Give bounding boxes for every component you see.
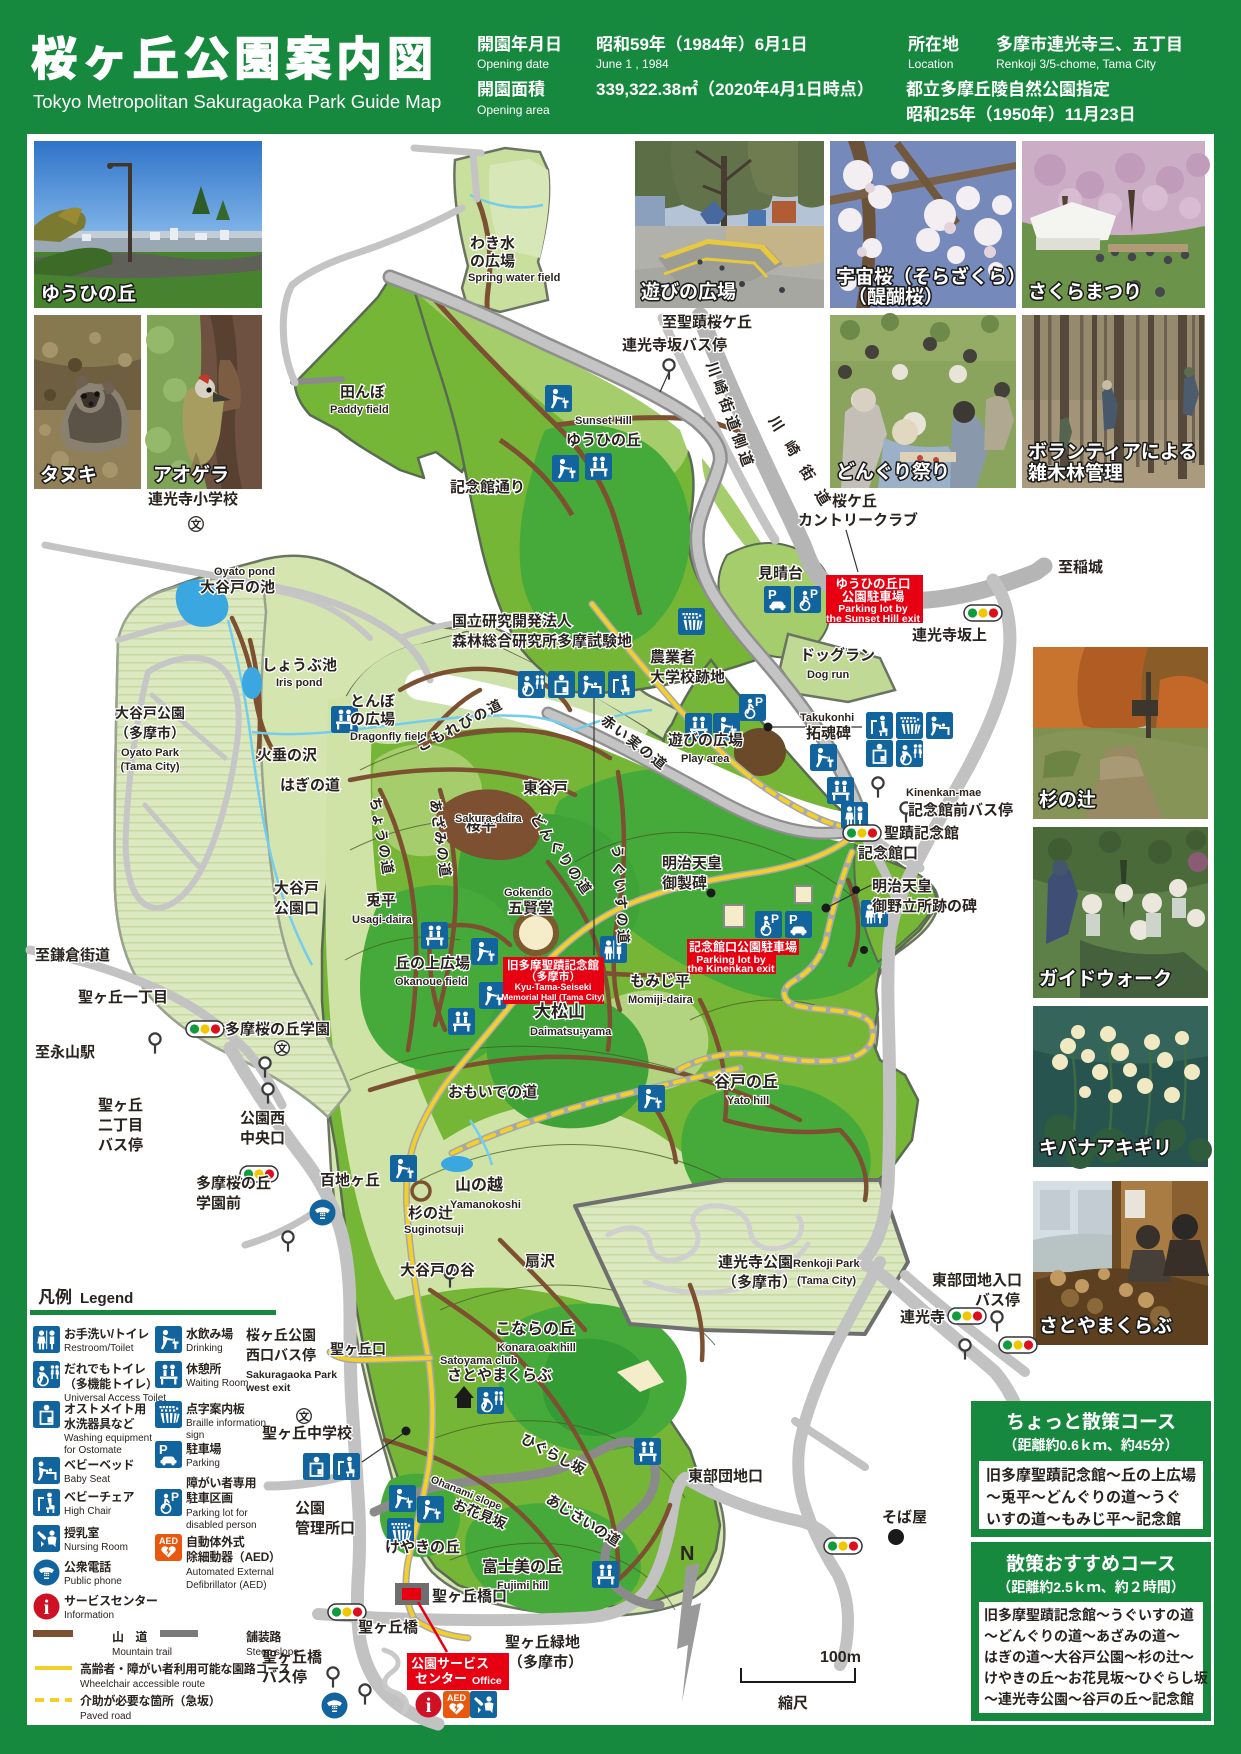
svg-text:ちょっと散策コース: ちょっと散策コース [1006,1407,1176,1434]
svg-text:Opening area: Opening area [477,103,550,117]
svg-text:杉の辻: 杉の辻 [408,1202,453,1223]
svg-text:(Tama City): (Tama City) [120,761,179,773]
svg-text:けやきの丘～お花見坂～ひぐらし坂: けやきの丘～お花見坂～ひぐらし坂 [984,1668,1208,1688]
svg-text:Tokyo Metropolitan Sakuragaoka: Tokyo Metropolitan Sakuragaoka Park Guid… [33,91,441,112]
svg-text:Braille information: Braille information [186,1418,266,1429]
svg-text:聖ヶ丘: 聖ヶ丘 [98,1094,143,1115]
svg-text:100m: 100m [820,1643,861,1667]
svg-text:Yato hill: Yato hill [727,1095,769,1107]
svg-text:田んぼ: 田んぼ [340,381,385,402]
svg-text:Konara oak hill: Konara oak hill [497,1342,576,1354]
svg-text:連光寺小学校: 連光寺小学校 [148,488,238,509]
svg-text:しょうぶ池: しょうぶ池 [262,654,337,675]
svg-text:disabled person: disabled person [186,1520,257,1531]
svg-text:Location: Location [908,57,953,71]
svg-text:授乳室: 授乳室 [64,1524,99,1541]
svg-text:大学校跡地: 大学校跡地 [650,666,725,687]
svg-text:Usagi-daira: Usagi-daira [352,914,413,926]
svg-text:（距離約0.6ｋｍ、約45分）: （距離約0.6ｋｍ、約45分） [1003,1435,1178,1455]
svg-text:～兎平～どんぐりの道～うぐ: ～兎平～どんぐりの道～うぐ [986,1486,1181,1507]
svg-text:Legend: Legend [80,1290,133,1307]
svg-text:多摩市連光寺三、五丁目: 多摩市連光寺三、五丁目 [996,30,1183,55]
svg-text:お手洗い/トイレ: お手洗い/トイレ [64,1325,149,1342]
svg-text:Nursing Room: Nursing Room [64,1542,128,1553]
svg-text:雑木林管理: 雑木林管理 [1028,458,1123,485]
svg-text:休憩所: 休憩所 [186,1360,221,1377]
svg-text:旧多摩聖蹟記念館～うぐいすの道: 旧多摩聖蹟記念館～うぐいすの道 [984,1605,1194,1625]
svg-text:Wheelchair accessible route: Wheelchair accessible route [80,1679,205,1690]
svg-text:旧多摩聖蹟記念館～丘の上広場: 旧多摩聖蹟記念館～丘の上広場 [986,1464,1196,1485]
svg-text:（多摩市）: （多摩市） [508,1651,583,1672]
svg-text:Parking lot for: Parking lot for [186,1508,248,1519]
svg-text:Oyato pond: Oyato pond [214,566,275,578]
svg-text:ゆうひの丘: ゆうひの丘 [566,429,641,450]
svg-text:水飲み場: 水飲み場 [186,1325,233,1342]
svg-text:（多機能トイレ）: （多機能トイレ） [64,1375,158,1392]
svg-text:舗装路: 舗装路 [246,1628,281,1645]
svg-text:記念館通り: 記念館通り [450,476,525,497]
svg-text:もみじ平: もみじ平 [630,970,690,991]
svg-text:御野立所跡の碑: 御野立所跡の碑 [872,895,977,916]
svg-text:至聖蹟桜ケ丘: 至聖蹟桜ケ丘 [662,311,752,332]
svg-text:さとやまくらぶ: さとやまくらぶ [1039,1311,1172,1338]
svg-text:Yamanokoshi: Yamanokoshi [450,1199,521,1211]
svg-text:管理所口: 管理所口 [295,1517,355,1538]
svg-text:（醍醐桜）: （醍醐桜） [848,282,943,309]
svg-text:介助が必要な箇所（急坂）: 介助が必要な箇所（急坂） [80,1692,220,1709]
svg-text:Office: Office [472,1675,502,1687]
svg-text:大谷戸の谷: 大谷戸の谷 [400,1259,475,1280]
svg-text:高齢者・障がい者利用可能な園路コース: 高齢者・障がい者利用可能な園路コース [80,1660,290,1677]
svg-text:Satoyama club: Satoyama club [440,1355,518,1367]
svg-text:都立多摩丘陵自然公園指定: 都立多摩丘陵自然公園指定 [906,75,1110,100]
svg-text:Renkoji Park: Renkoji Park [793,1258,861,1270]
svg-text:こならの丘: こならの丘 [495,1315,575,1339]
svg-text:縮尺: 縮尺 [778,1692,808,1713]
svg-text:キバナアキギリ: キバナアキギリ [1039,1133,1172,1160]
svg-text:開園面積: 開園面積 [477,75,545,100]
svg-text:西口バス停: 西口バス停 [246,1345,316,1365]
svg-text:桜ヶ丘公園: 桜ヶ丘公園 [246,1325,316,1345]
svg-text:（多摩市）: （多摩市） [115,723,185,743]
svg-text:水洗器具など: 水洗器具など [64,1415,135,1432]
svg-text:聖ヶ丘一丁目: 聖ヶ丘一丁目 [78,986,168,1007]
svg-text:はぎの道: はぎの道 [280,774,340,795]
svg-text:所在地: 所在地 [908,30,959,55]
svg-text:大谷戸: 大谷戸 [274,877,319,898]
svg-text:（距離約2.5ｋｍ、約２時間）: （距離約2.5ｋｍ、約２時間） [997,1577,1184,1597]
svg-text:Iris pond: Iris pond [276,677,322,689]
svg-text:Fujimi hill: Fujimi hill [497,1580,548,1592]
svg-text:公園: 公園 [295,1497,325,1518]
svg-text:至稲城: 至稲城 [1058,556,1103,577]
svg-text:記念館前バス停: 記念館前バス停 [908,799,1013,820]
svg-text:June 1 , 1984: June 1 , 1984 [596,57,669,71]
svg-text:富士美の丘: 富士美の丘 [482,1553,562,1577]
svg-text:明治天皇: 明治天皇 [872,875,932,896]
svg-text:(Tama City): (Tama City) [797,1275,856,1287]
svg-text:山の越: 山の越 [455,1171,503,1195]
svg-text:Okanoue field: Okanoue field [395,976,468,988]
svg-text:遊びの広場: 遊びの広場 [641,277,736,304]
svg-text:Kyu-Tama-Seiseki: Kyu-Tama-Seiseki [515,982,592,992]
svg-text:ベビーベッド: ベビーベッド [64,1456,134,1473]
svg-text:Daimatsu-yama: Daimatsu-yama [530,1026,612,1038]
svg-text:公衆電話: 公衆電話 [64,1558,111,1575]
svg-text:おもいでの道: おもいでの道 [448,1081,537,1102]
svg-text:Kinenkan-mae: Kinenkan-mae [906,787,981,799]
svg-text:大松山: 大松山 [534,997,585,1022]
svg-text:the Sunset Hill exit: the Sunset Hill exit [826,613,920,625]
svg-text:山 道: 山 道 [112,1628,147,1645]
svg-text:農業者: 農業者 [650,646,695,667]
svg-text:Oyato Park: Oyato Park [121,747,180,759]
svg-text:Parking: Parking [186,1458,220,1469]
svg-text:丘の上広場: 丘の上広場 [395,952,470,973]
svg-text:記念館口公園駐車場: 記念館口公園駐車場 [689,938,797,955]
svg-text:連光寺坂バス停: 連光寺坂バス停 [622,334,727,355]
svg-text:（多摩市）: （多摩市） [722,1271,797,1292]
svg-text:Automated External: Automated External [186,1567,274,1578]
svg-text:聖ヶ丘口: 聖ヶ丘口 [330,1339,386,1359]
svg-text:Momiji-daira: Momiji-daira [628,994,694,1006]
svg-text:センター: センター [415,1668,467,1687]
svg-text:Paved road: Paved road [80,1711,131,1722]
svg-text:聖蹟記念館: 聖蹟記念館 [884,822,959,843]
svg-text:N: N [680,1543,694,1565]
svg-text:五賢堂: 五賢堂 [508,897,553,918]
svg-text:東部団地口: 東部団地口 [688,1465,763,1486]
svg-text:連光寺坂上: 連光寺坂上 [912,624,987,645]
svg-text:Washing equipment: Washing equipment [64,1433,152,1444]
svg-text:火垂の沢: 火垂の沢 [257,744,317,765]
svg-text:聖ヶ丘橋: 聖ヶ丘橋 [358,1616,418,1637]
svg-text:ガイドウォーク: ガイドウォーク [1039,964,1172,991]
svg-text:いすの道～もみじ平～記念館: いすの道～もみじ平～記念館 [986,1508,1181,1529]
svg-text:Paddy field: Paddy field [330,404,389,416]
svg-text:Waiting Room: Waiting Room [186,1378,248,1389]
svg-text:タヌキ: タヌキ [40,460,97,487]
svg-text:中央口: 中央口 [240,1127,285,1148]
svg-text:Drinking: Drinking [186,1343,223,1354]
svg-text:Restroom/Toilet: Restroom/Toilet [64,1343,134,1354]
svg-text:至永山駅: 至永山駅 [35,1041,95,1062]
svg-text:散策おすすめコース: 散策おすすめコース [1006,1549,1176,1576]
svg-text:the Kinenkan exit: the Kinenkan exit [688,963,775,975]
svg-text:遊びの広場: 遊びの広場 [668,729,743,750]
svg-text:Public phone: Public phone [64,1576,122,1587]
svg-text:大谷戸の池: 大谷戸の池 [200,576,275,597]
svg-text:ドッグラン: ドッグラン [800,644,875,665]
svg-text:Renkoji 3/5-chome, Tama City: Renkoji 3/5-chome, Tama City [996,57,1156,71]
svg-text:昭和59年（1984年）6月1日: 昭和59年（1984年）6月1日 [596,30,808,55]
svg-text:記念館口: 記念館口 [858,842,918,863]
svg-text:カントリークラブ: カントリークラブ [798,509,918,530]
svg-text:Opening date: Opening date [477,57,549,71]
svg-text:駐車場: 駐車場 [186,1440,221,1457]
svg-text:Takukonhi: Takukonhi [800,712,854,724]
svg-text:兎平: 兎平 [366,889,396,910]
svg-text:東谷戸: 東谷戸 [523,777,568,798]
svg-text:けやきの丘: けやきの丘 [385,1536,460,1557]
svg-text:多摩桜の丘: 多摩桜の丘 [196,1172,271,1193]
svg-text:公園西: 公園西 [240,1107,285,1128]
svg-text:の広場: の広場 [350,708,395,729]
svg-text:Baby Seat: Baby Seat [64,1474,110,1485]
svg-text:for Ostomate: for Ostomate [64,1445,122,1456]
svg-text:Play area: Play area [681,753,730,765]
svg-text:Defibrillator (AED): Defibrillator (AED) [186,1580,267,1591]
svg-text:公園口: 公園口 [274,897,319,918]
svg-text:連光寺公園: 連光寺公園 [718,1251,793,1272]
svg-text:Information: Information [64,1610,114,1621]
svg-text:Dog run: Dog run [807,669,849,681]
svg-text:聖ヶ丘中学校: 聖ヶ丘中学校 [262,1422,352,1443]
svg-text:凡例: 凡例 [38,1283,72,1308]
svg-text:杉の辻: 杉の辻 [1039,785,1096,812]
svg-text:拓魂碑: 拓魂碑 [806,722,851,743]
svg-text:点字案内板: 点字案内板 [186,1400,245,1417]
svg-text:さとやまくらぶ: さとやまくらぶ [447,1364,552,1385]
svg-text:さくらまつり: さくらまつり [1028,277,1142,304]
svg-text:聖ヶ丘橋口: 聖ヶ丘橋口 [432,1585,507,1606]
svg-text:Gokendo: Gokendo [504,887,552,899]
svg-text:Sunset Hill: Sunset Hill [575,415,632,427]
svg-text:谷戸の丘: 谷戸の丘 [714,1068,778,1092]
svg-text:はぎの道～大谷戸公園～杉の辻～: はぎの道～大谷戸公園～杉の辻～ [984,1647,1194,1667]
svg-text:バス停: バス停 [98,1134,143,1155]
svg-text:見晴台: 見晴台 [758,562,803,583]
svg-text:御製碑: 御製碑 [662,872,707,893]
svg-text:Sakuragaoka Park: Sakuragaoka Park [246,1369,337,1381]
svg-text:東部団地入口: 東部団地入口 [932,1269,1022,1290]
svg-text:明治天皇: 明治天皇 [662,852,722,873]
svg-text:多摩桜の丘学園: 多摩桜の丘学園 [225,1018,330,1039]
svg-text:Universal Access Toilet: Universal Access Toilet [64,1393,166,1404]
svg-text:west exit: west exit [245,1382,291,1394]
svg-text:Spring water field: Spring water field [468,272,560,284]
svg-text:ゆうひの丘: ゆうひの丘 [41,279,136,306]
svg-text:連光寺: 連光寺 [900,1306,945,1327]
svg-text:～どんぐりの道～あざみの道～: ～どんぐりの道～あざみの道～ [984,1626,1180,1646]
svg-text:そば屋: そば屋 [882,1506,927,1527]
svg-text:開園年月日: 開園年月日 [477,30,562,55]
svg-text:除細動器（AED）: 除細動器（AED） [186,1548,281,1565]
svg-text:大谷戸公園: 大谷戸公園 [115,703,185,723]
svg-text:High Chair: High Chair [64,1506,112,1517]
svg-text:Suginotsuji: Suginotsuji [404,1224,464,1236]
svg-text:二丁目: 二丁目 [98,1114,143,1135]
svg-text:サービスセンター: サービスセンター [64,1592,158,1609]
svg-text:Steep slope: Steep slope [246,1647,299,1658]
svg-text:森林総合研究所多摩試験地: 森林総合研究所多摩試験地 [452,630,632,651]
svg-text:Mountain trail: Mountain trail [112,1647,172,1658]
svg-text:アオゲラ: アオゲラ [153,460,229,487]
svg-text:聖ヶ丘緑地: 聖ヶ丘緑地 [505,1631,580,1652]
svg-text:ベビーチェア: ベビーチェア [64,1488,135,1505]
svg-text:339,322.38㎡（2020年4月1日時点）: 339,322.38㎡（2020年4月1日時点） [596,75,874,100]
svg-text:昭和25年（1950年）11月23日: 昭和25年（1950年）11月23日 [906,100,1136,125]
svg-text:の広場: の広場 [470,250,515,271]
svg-text:どんぐり祭り: どんぐり祭り [836,457,950,484]
svg-text:百地ヶ丘: 百地ヶ丘 [320,1169,380,1190]
svg-text:～連光寺公園～谷戸の丘～記念館: ～連光寺公園～谷戸の丘～記念館 [984,1689,1194,1709]
svg-text:学園前: 学園前 [196,1192,241,1213]
svg-text:sign: sign [186,1430,204,1441]
svg-text:至鎌倉街道: 至鎌倉街道 [35,944,110,965]
svg-text:バス停: バス停 [975,1289,1020,1310]
svg-text:扇沢: 扇沢 [525,1250,555,1271]
svg-text:Sakura-daira: Sakura-daira [455,813,523,825]
svg-text:国立研究開発法人: 国立研究開発法人 [452,610,572,631]
svg-text:駐車区画: 駐車区画 [186,1489,233,1506]
